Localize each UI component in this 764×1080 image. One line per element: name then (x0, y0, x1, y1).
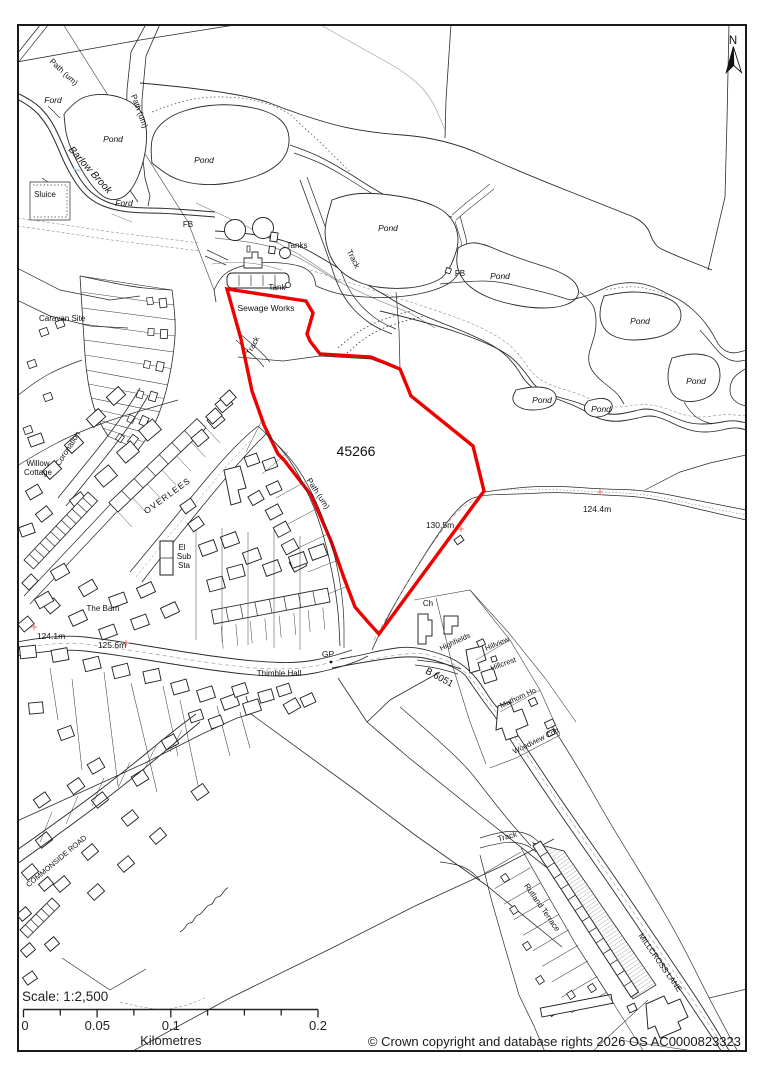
svg-text:Cottage: Cottage (24, 468, 53, 477)
svg-text:0.05: 0.05 (85, 1018, 110, 1033)
svg-text:125.6m: 125.6m (98, 640, 126, 650)
svg-text:Pond: Pond (532, 395, 552, 405)
svg-text:45266: 45266 (337, 443, 376, 459)
svg-text:Pond: Pond (194, 155, 214, 165)
svg-text:Sewage Works: Sewage Works (237, 303, 294, 313)
svg-text:Willow: Willow (26, 459, 49, 468)
svg-text:124.4m: 124.4m (583, 504, 611, 514)
svg-text:Caravan Site: Caravan Site (39, 314, 86, 323)
svg-text:© Crown copyright and database: © Crown copyright and database rights 20… (368, 1034, 741, 1049)
svg-text:Sluice: Sluice (34, 190, 56, 199)
svg-text:N: N (729, 35, 737, 47)
svg-text:GP: GP (322, 649, 335, 659)
svg-text:Ford: Ford (44, 95, 62, 105)
svg-text:Kilometres: Kilometres (140, 1033, 202, 1048)
svg-text:FB: FB (455, 269, 465, 278)
svg-text:Pond: Pond (490, 271, 510, 281)
svg-text:Sub: Sub (177, 552, 192, 561)
svg-text:Tank: Tank (269, 283, 287, 292)
svg-text:0: 0 (21, 1018, 28, 1033)
svg-text:Pond: Pond (591, 404, 611, 414)
svg-text:0.2: 0.2 (309, 1018, 327, 1033)
svg-text:Ch: Ch (423, 599, 433, 608)
svg-text:Sta: Sta (178, 561, 191, 570)
svg-text:Thimble Hall: Thimble Hall (257, 669, 302, 678)
svg-text:El: El (178, 543, 185, 552)
svg-text:Ford: Ford (115, 198, 133, 208)
svg-text:FB: FB (183, 220, 193, 229)
svg-text:Tanks: Tanks (287, 241, 308, 250)
svg-text:Pond: Pond (378, 223, 398, 233)
svg-text:130.5m: 130.5m (426, 520, 454, 530)
svg-text:Pond: Pond (103, 134, 123, 144)
svg-text:The Barn: The Barn (87, 604, 120, 613)
svg-text:Pond: Pond (686, 376, 706, 386)
svg-text:0.1: 0.1 (162, 1018, 180, 1033)
svg-text:Scale: 1:2,500: Scale: 1:2,500 (22, 989, 108, 1004)
svg-text:Pond: Pond (630, 316, 650, 326)
svg-text:124.1m: 124.1m (37, 631, 65, 641)
